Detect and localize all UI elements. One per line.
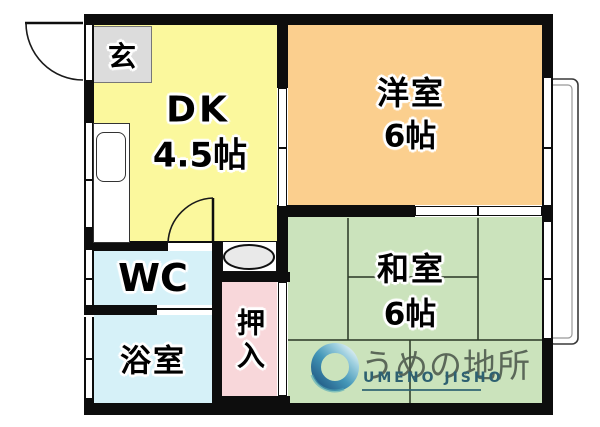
logo-romaji: UMENO JISHO <box>363 370 503 386</box>
logo-underline <box>362 389 481 391</box>
logo-ring-icon <box>316 348 354 386</box>
floorplan: 玄 DK 4.5帖 洋室 6帖 和室 6帖 WC 浴室 押入 うめの地所 UME… <box>0 0 600 427</box>
